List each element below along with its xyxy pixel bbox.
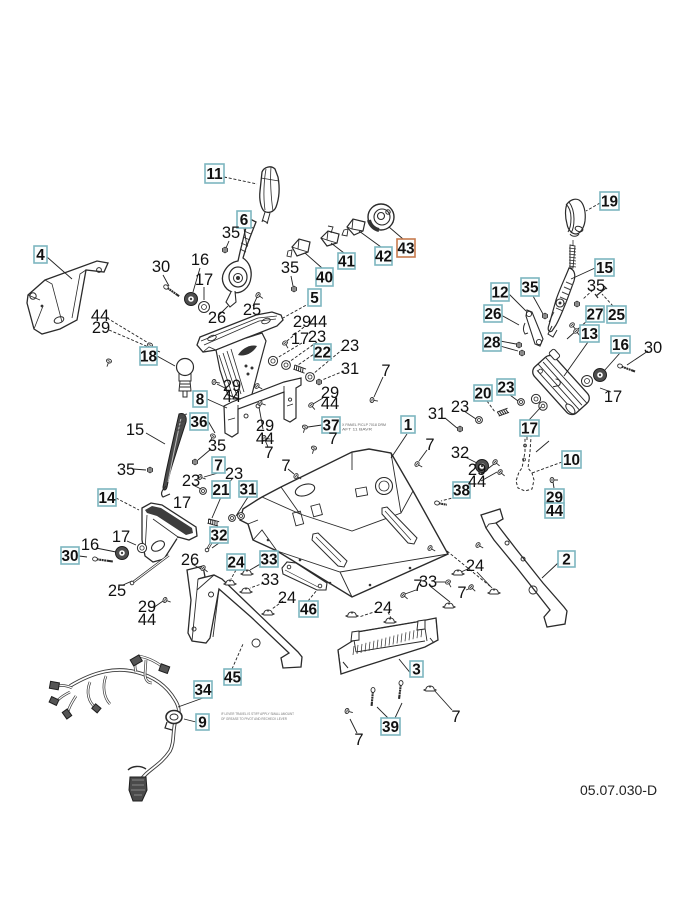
- svg-text:35: 35: [587, 277, 605, 295]
- svg-text:17: 17: [521, 421, 538, 438]
- svg-text:AFT 11 BAVR: AFT 11 BAVR: [342, 427, 372, 432]
- svg-text:15: 15: [126, 421, 144, 439]
- svg-text:16: 16: [81, 536, 99, 554]
- svg-text:34: 34: [194, 682, 212, 699]
- svg-text:18: 18: [140, 349, 158, 366]
- svg-text:17: 17: [291, 330, 309, 348]
- svg-text:7: 7: [214, 458, 223, 475]
- svg-text:20: 20: [474, 386, 491, 403]
- svg-text:19: 19: [601, 194, 618, 211]
- svg-text:26: 26: [181, 551, 199, 569]
- svg-text:17: 17: [195, 271, 213, 289]
- svg-text:35: 35: [281, 259, 299, 277]
- svg-text:40: 40: [316, 270, 333, 287]
- svg-text:10: 10: [563, 452, 580, 469]
- svg-text:7: 7: [425, 436, 434, 454]
- svg-text:33: 33: [261, 571, 279, 589]
- svg-text:17: 17: [112, 528, 130, 546]
- svg-text:30: 30: [152, 258, 170, 276]
- svg-text:25: 25: [243, 301, 261, 319]
- svg-text:35: 35: [222, 224, 240, 242]
- svg-text:7: 7: [328, 430, 337, 448]
- svg-text:24: 24: [278, 589, 296, 607]
- svg-text:1: 1: [404, 417, 413, 434]
- svg-text:7: 7: [354, 731, 363, 749]
- svg-text:7: 7: [264, 444, 273, 462]
- svg-text:13: 13: [581, 326, 598, 343]
- svg-text:7: 7: [451, 708, 460, 726]
- svg-text:4: 4: [36, 247, 45, 264]
- svg-text:25: 25: [608, 307, 626, 324]
- svg-text:23: 23: [451, 398, 469, 416]
- svg-text:44: 44: [138, 611, 156, 629]
- svg-text:35: 35: [208, 437, 226, 455]
- svg-text:44: 44: [223, 388, 241, 406]
- svg-text:32: 32: [210, 528, 227, 545]
- svg-text:44: 44: [321, 395, 339, 413]
- svg-text:23: 23: [341, 337, 359, 355]
- svg-text:22: 22: [314, 345, 331, 362]
- svg-text:26: 26: [484, 306, 501, 323]
- svg-text:29: 29: [92, 319, 110, 337]
- svg-text:OF GREASE TO PIVOT AND RECHECK: OF GREASE TO PIVOT AND RECHECK LEVER: [221, 716, 287, 721]
- svg-text:35: 35: [117, 461, 135, 479]
- svg-text:7: 7: [457, 584, 466, 602]
- svg-text:15: 15: [596, 260, 614, 277]
- svg-text:24: 24: [374, 599, 392, 617]
- svg-text:42: 42: [375, 249, 392, 266]
- svg-text:31: 31: [239, 482, 257, 499]
- svg-text:36: 36: [190, 414, 207, 431]
- svg-text:17: 17: [173, 494, 191, 512]
- svg-text:8: 8: [196, 392, 205, 409]
- svg-text:05.07.030-D: 05.07.030-D: [580, 782, 657, 798]
- svg-text:6: 6: [240, 212, 249, 229]
- svg-text:24: 24: [466, 557, 484, 575]
- svg-text:21: 21: [212, 482, 230, 499]
- svg-text:43: 43: [397, 241, 414, 258]
- svg-text:5: 5: [310, 290, 319, 307]
- svg-text:26: 26: [208, 309, 226, 327]
- svg-text:9: 9: [198, 715, 207, 732]
- svg-text:30: 30: [644, 339, 662, 357]
- svg-text:23: 23: [225, 465, 243, 483]
- svg-text:30: 30: [61, 548, 78, 565]
- svg-text:25: 25: [108, 582, 126, 600]
- svg-text:41: 41: [338, 254, 356, 271]
- svg-text:28: 28: [483, 335, 501, 352]
- svg-text:23: 23: [497, 380, 514, 397]
- svg-text:35: 35: [521, 280, 539, 297]
- svg-text:12: 12: [491, 285, 508, 302]
- svg-text:45: 45: [224, 670, 242, 687]
- svg-text:7: 7: [413, 577, 422, 595]
- svg-text:14: 14: [98, 490, 116, 507]
- svg-text:31: 31: [428, 405, 446, 423]
- svg-text:27: 27: [586, 307, 603, 324]
- svg-text:32: 32: [451, 444, 469, 462]
- svg-text:46: 46: [300, 602, 317, 619]
- svg-text:17: 17: [604, 388, 622, 406]
- svg-text:7: 7: [281, 457, 290, 475]
- svg-text:31: 31: [341, 360, 359, 378]
- svg-text:23: 23: [182, 472, 200, 490]
- svg-text:3: 3: [412, 662, 421, 679]
- svg-text:44: 44: [468, 473, 486, 491]
- svg-text:16: 16: [191, 251, 209, 269]
- svg-text:2: 2: [562, 552, 571, 569]
- svg-text:39: 39: [382, 719, 399, 736]
- svg-text:11: 11: [206, 166, 223, 183]
- svg-text:24: 24: [227, 555, 245, 572]
- svg-text:44: 44: [546, 503, 564, 520]
- svg-text:16: 16: [612, 337, 629, 354]
- svg-text:7: 7: [381, 362, 390, 380]
- svg-text:23: 23: [308, 328, 326, 346]
- svg-text:33: 33: [260, 552, 277, 569]
